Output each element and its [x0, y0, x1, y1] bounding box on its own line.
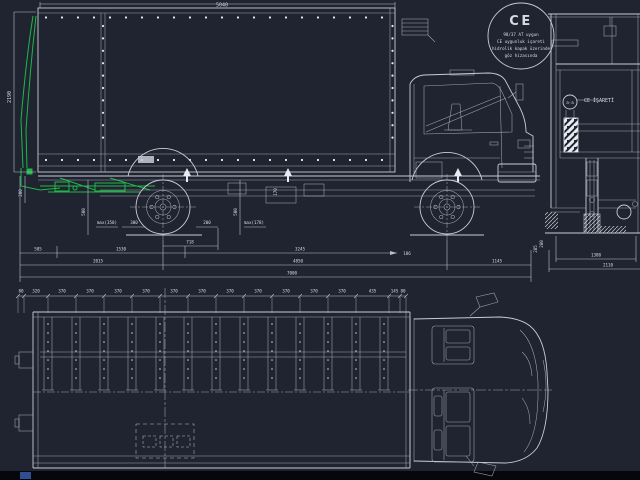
- dim-lift-rear: 500: [81, 208, 86, 216]
- chain-dim-label: 80: [18, 289, 24, 294]
- chain-dim-label: 145: [391, 289, 399, 294]
- dim-row1-c: 3245: [295, 247, 306, 252]
- column-hatch: [584, 214, 600, 233]
- chain-dim-label: 435: [369, 289, 377, 294]
- dim-box-height: 2190: [7, 91, 13, 103]
- chain-dim-label: 370: [226, 289, 234, 294]
- dim-row3-total: 7000: [287, 271, 298, 276]
- badge-line4: göz hizasında: [505, 53, 538, 58]
- badge-line3: hidrolik kapak üzerinde: [492, 46, 550, 51]
- chain-dim-label: 370: [170, 289, 178, 294]
- dim-box-length: 5040: [216, 3, 228, 9]
- section-marker-label: a-a: [566, 100, 574, 105]
- model-tab-marker[interactable]: [20, 472, 31, 479]
- dim-overall-width: 2110: [603, 263, 614, 268]
- box-plate: [138, 156, 154, 163]
- ce-mark-icon: CE: [509, 14, 532, 29]
- ce-mark-callout: CE İŞARETİ: [584, 97, 614, 104]
- chain-dim-label: 370: [86, 289, 94, 294]
- chain-dim-label: 370: [142, 289, 150, 294]
- note-max-front: max(178): [244, 220, 264, 225]
- note-max-rear: max(350): [97, 220, 117, 225]
- cad-viewport[interactable]: 5040 2190 200 500 max(350) 300 200 500 m…: [0, 0, 640, 480]
- dim-right-height: 285: [533, 245, 538, 253]
- ground-hatch-left: [545, 212, 558, 229]
- dim-axle-detail: 718: [186, 240, 194, 245]
- dim-cab-gap: 186: [403, 251, 411, 256]
- chain-dim-label: 370: [254, 289, 262, 294]
- cad-drawing-canvas[interactable]: 5040 2190 200 500 max(350) 300 200 500 m…: [0, 0, 640, 480]
- chain-dim-label: 80: [400, 289, 406, 294]
- chain-dim-label: 370: [58, 289, 66, 294]
- dim-row2-c: 1145: [492, 259, 503, 264]
- dim-lift-front: 500: [233, 208, 238, 216]
- chain-dim-label: 370: [198, 289, 206, 294]
- hazard-stripe-panel: [564, 118, 578, 152]
- chain-dim-label: 320: [32, 289, 40, 294]
- bottom-edge-band: [0, 471, 640, 480]
- chain-dim-label: 370: [310, 289, 318, 294]
- dim-platform-height: 280: [539, 240, 544, 248]
- chain-dim-label: 370: [282, 289, 290, 294]
- chain-dim-label: 370: [338, 289, 346, 294]
- badge-line2: CE uygunluk işareti: [497, 39, 545, 44]
- dim-row1-a: 505: [34, 247, 42, 252]
- chain-dim-label: 370: [114, 289, 122, 294]
- dim-frame-height: 170: [273, 188, 278, 196]
- dim-row2-a: 2015: [93, 259, 104, 264]
- dim-front-wheel-gap: 200: [203, 220, 211, 225]
- dim-rear-drop: 200: [18, 189, 23, 197]
- dim-rear-wheel-gap: 300: [130, 220, 138, 225]
- badge-line1: 98/37 AT uygun: [503, 32, 539, 37]
- dim-row2-b: 4850: [293, 259, 304, 264]
- dim-inner-width: 1380: [591, 253, 602, 258]
- ground-hatch-right: [600, 226, 626, 233]
- dim-row1-b: 1530: [116, 247, 127, 252]
